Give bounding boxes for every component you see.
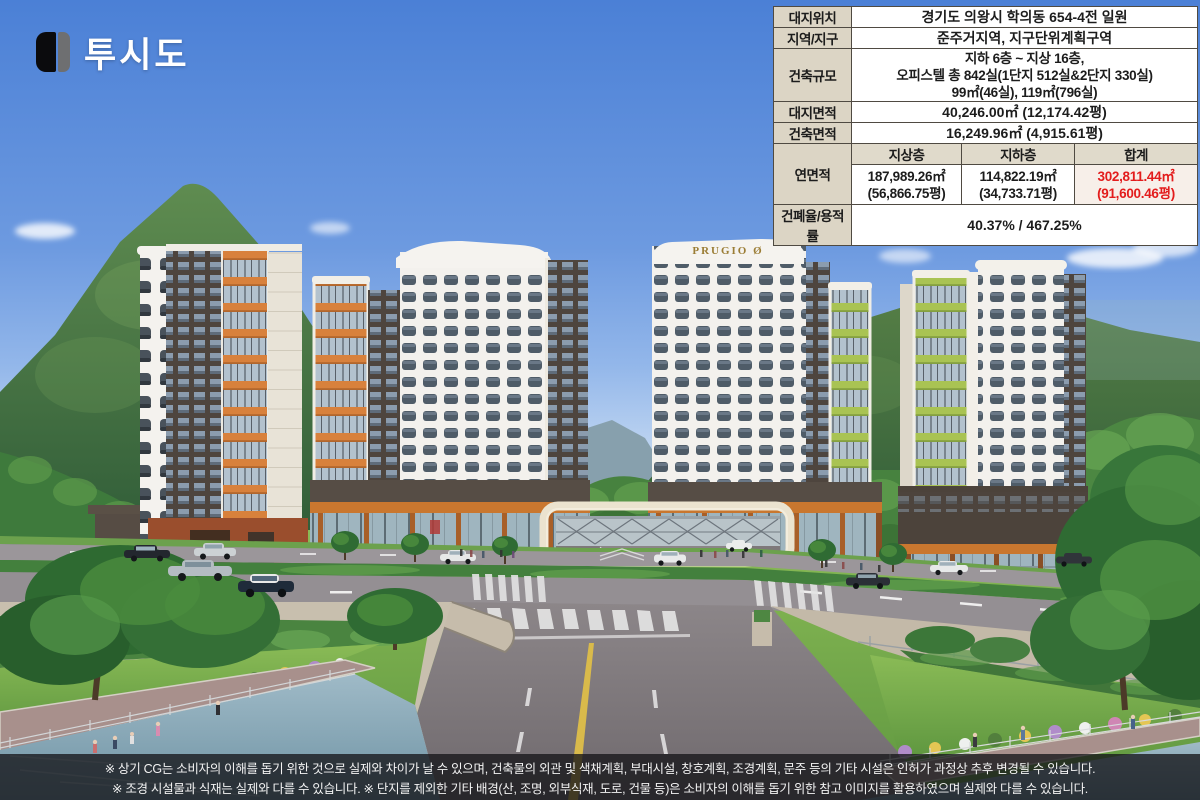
value-site-location: 경기도 의왕시 학의동 654-4전 일원 [852, 7, 1198, 28]
logo: 투시도 [36, 30, 190, 74]
label-zoning: 지역/지구 [774, 28, 852, 49]
value-site-area: 40,246.00㎡ (12,174.42평) [852, 102, 1198, 123]
perspective-rendering-page: 투시도 PRUGIO Ø 대지위치 경기도 의왕시 학의동 654-4전 일원 … [0, 0, 1200, 800]
scale-line-3: 99㎡(46실), 119㎡(796실) [854, 84, 1195, 101]
value-above-ground: 187,989.26㎡ (56,866.75평) [852, 165, 962, 205]
below-area: 114,822.19㎡ [964, 168, 1072, 185]
total-pyeong: (91,600.46평) [1077, 185, 1195, 202]
value-below-ground: 114,822.19㎡ (34,733.71평) [962, 165, 1075, 205]
building-right-tower [898, 260, 1088, 576]
label-floor-area: 연면적 [774, 144, 852, 205]
disclaimer: ※ 상기 CG는 소비자의 이해를 돕기 위한 것으로 실제와 차이가 날 수 … [0, 754, 1200, 800]
table-row-site-area: 대지면적 40,246.00㎡ (12,174.42평) [774, 102, 1198, 123]
prugio-brand-sign: PRUGIO Ø [663, 245, 793, 257]
table-row-floor-area-headers: 연면적 지상층 지하층 합계 [774, 144, 1198, 165]
table-row-ratio: 건폐율/용적률 40.37% / 467.25% [774, 205, 1198, 246]
table-row-site-location: 대지위치 경기도 의왕시 학의동 654-4전 일원 [774, 7, 1198, 28]
header-below-ground: 지하층 [962, 144, 1075, 165]
disclaimer-line-2: ※ 조경 시설물과 식재는 실제와 다를 수 있습니다. ※ 단지를 제외한 기… [112, 778, 1088, 797]
label-building-area: 건축면적 [774, 123, 852, 144]
value-total: 302,811.44㎡ (91,600.46평) [1075, 165, 1198, 205]
header-total: 합계 [1075, 144, 1198, 165]
disclaimer-line-1: ※ 상기 CG는 소비자의 이해를 돕기 위한 것으로 실제와 차이가 날 수 … [105, 758, 1096, 777]
value-zoning: 준주거지역, 지구단위계획구역 [852, 28, 1198, 49]
label-site-area: 대지면적 [774, 102, 852, 123]
label-site-location: 대지위치 [774, 7, 852, 28]
value-ratio: 40.37% / 467.25% [852, 205, 1198, 246]
table-row-scale: 건축규모 지하 6층 ~ 지상 16층, 오피스텔 총 842실(1단지 512… [774, 49, 1198, 102]
label-scale: 건축규모 [774, 49, 852, 102]
label-ratio: 건폐율/용적률 [774, 205, 852, 246]
table-row-zoning: 지역/지구 준주거지역, 지구단위계획구역 [774, 28, 1198, 49]
total-area: 302,811.44㎡ [1077, 168, 1195, 185]
scale-line-1: 지하 6층 ~ 지상 16층, [854, 50, 1195, 67]
value-building-area: 16,249.96㎡ (4,915.61평) [852, 123, 1198, 144]
page-title: 투시도 [84, 27, 190, 78]
header-above-ground: 지상층 [852, 144, 962, 165]
logo-mark-icon [36, 32, 56, 72]
table-row-building-area: 건축면적 16,249.96㎡ (4,915.61평) [774, 123, 1198, 144]
above-pyeong: (56,866.75평) [854, 185, 959, 202]
above-area: 187,989.26㎡ [854, 168, 959, 185]
project-info-table: 대지위치 경기도 의왕시 학의동 654-4전 일원 지역/지구 준주거지역, … [773, 6, 1198, 246]
below-pyeong: (34,733.71평) [964, 185, 1072, 202]
value-scale: 지하 6층 ~ 지상 16층, 오피스텔 총 842실(1단지 512실&2단지… [852, 49, 1198, 102]
scale-line-2: 오피스텔 총 842실(1단지 512실&2단지 330실) [854, 67, 1195, 84]
logo-mark-icon-secondary [58, 32, 70, 72]
